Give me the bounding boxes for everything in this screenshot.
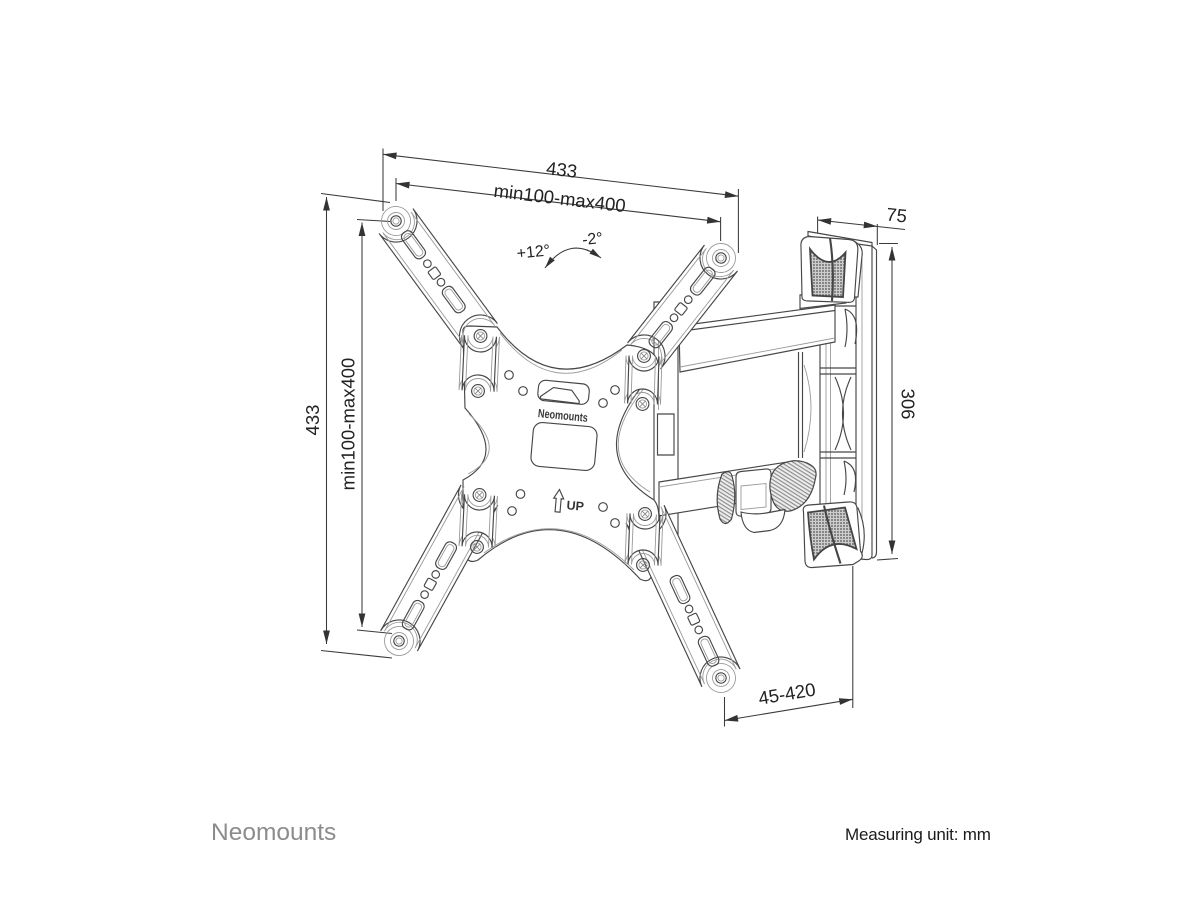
svg-text:+12°: +12° (516, 242, 551, 262)
svg-text:UP: UP (566, 498, 585, 513)
svg-text:433: 433 (302, 405, 323, 436)
svg-text:306: 306 (898, 389, 919, 420)
svg-text:min100-max400: min100-max400 (338, 358, 359, 491)
svg-text:Neomounts: Neomounts (211, 819, 336, 846)
svg-text:433: 433 (545, 157, 578, 181)
svg-text:Measuring unit: mm: Measuring unit: mm (845, 825, 991, 844)
svg-text:75: 75 (885, 203, 908, 226)
svg-text:-2°: -2° (581, 230, 603, 249)
